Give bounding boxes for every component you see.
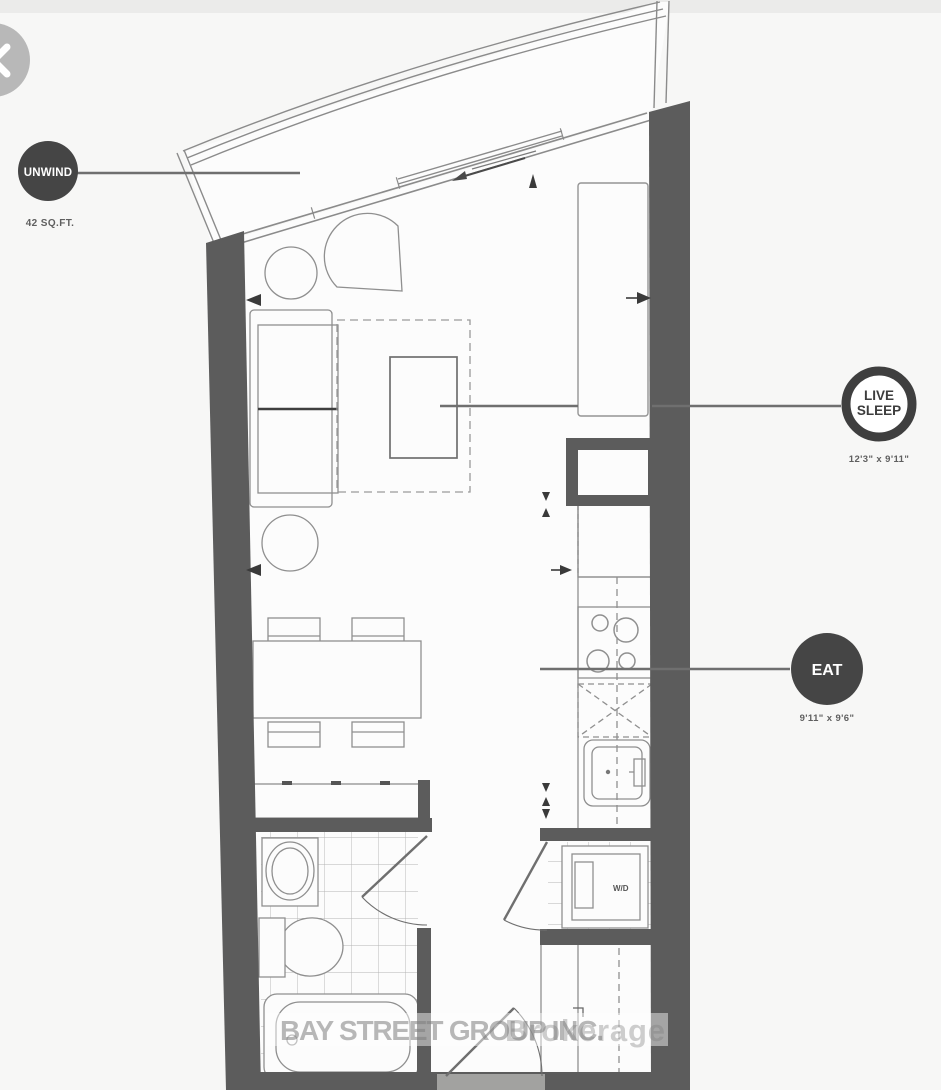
niche-interior	[578, 450, 648, 495]
eat-dimensions: 9'11" x 9'6"	[800, 713, 855, 724]
unwind-area: 42 SQ.FT.	[26, 218, 75, 229]
wall-kitchen-laundry	[540, 828, 652, 841]
eat-label: EAT	[812, 662, 843, 679]
wall-bathroom-top	[255, 818, 432, 832]
unwind-label: UNWIND	[24, 167, 72, 179]
floorplan-viewer: W/D	[0, 0, 941, 1090]
live-label: LIVE	[864, 388, 894, 403]
wall-right	[649, 101, 690, 1090]
sleep-label: SLEEP	[857, 403, 901, 418]
dining-table	[253, 641, 421, 718]
watermark-suffix: Brokerage	[505, 1013, 665, 1048]
laundry-closet: W/D	[562, 846, 648, 928]
vanity-sink	[262, 838, 318, 906]
wall-stub	[418, 780, 430, 820]
live-sleep-dimensions: 12'3" x 9'11"	[849, 454, 909, 465]
wall-bathroom-right	[417, 928, 431, 1090]
wall-laundry-bottom	[540, 929, 652, 945]
top-edge-band	[0, 0, 941, 13]
washer-dryer-label: W/D	[613, 884, 629, 893]
floorplan-image: W/D	[0, 0, 941, 1090]
entry-threshold	[437, 1074, 545, 1090]
watermark: BAY STREET GROUP INC. Brokerage	[266, 1013, 668, 1048]
